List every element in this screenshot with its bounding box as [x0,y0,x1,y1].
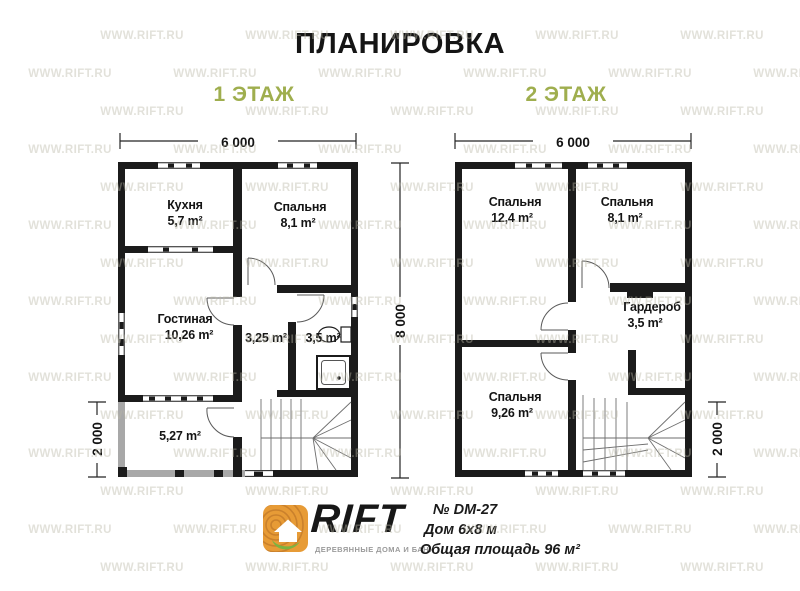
dimension-veranda-left: 2 000 [88,402,106,477]
floor2-plan: Спальня 12,4 m² Спальня 8,1 m² Гардероб … [455,162,692,477]
room-name: Спальня [489,195,542,209]
window [525,470,558,477]
dimension-depth: 8 000 [391,163,409,478]
room-area: 8,1 m² [608,211,643,225]
room-area: 3,5 m² [306,331,341,345]
window [515,162,562,169]
window [588,162,627,169]
project-number: № DM-27 [433,500,580,520]
entrance-opening [245,471,273,477]
room-name: Гардероб [623,300,681,314]
window [158,162,200,169]
room-name: Спальня [274,200,327,214]
door-arc [297,295,324,322]
dim-label: 2 000 [710,422,725,456]
dimension-width-floor2: 6 000 [455,133,691,150]
floor-plan-page: ПЛАНИРОВКА 1 ЭТАЖ 2 ЭТАЖ [0,0,800,591]
window [583,470,625,477]
room-area: 9,26 m² [491,406,533,420]
project-info: № DM-27 Дом 6х8 м Общая площадь 96 м² [420,500,580,560]
window [351,297,358,317]
room-area: 8,1 m² [281,216,316,230]
shower-icon [317,356,350,389]
room-name: Спальня [489,390,542,404]
room-area: 10,26 m² [165,328,213,342]
dim-label: 6 000 [221,135,255,150]
door-arc [248,258,275,285]
room-area: 3,5 m² [628,316,663,330]
window [118,313,125,355]
rift-logo-tagline: ДЕРЕВЯННЫЕ ДОМА И БАНИ [315,545,435,554]
room-name: Спальня [601,195,654,209]
floor1-doors [207,258,324,437]
dim-label: 6 000 [556,135,590,150]
floor2-room-labels: Спальня 12,4 m² Спальня 8,1 m² Гардероб … [489,195,682,420]
room-name: Кухня [167,198,203,212]
window [278,162,317,169]
room-name: Гостиная [158,312,213,326]
house-size: Дом 6х8 м [424,520,580,540]
room-area: 5,7 m² [168,214,203,228]
door-arc [582,261,609,288]
rift-logo-icon [263,505,308,552]
door-arc [541,353,568,380]
room-area: 5,27 m² [159,429,201,443]
dim-label: 8 000 [393,304,408,338]
window [143,395,213,402]
door-arc [207,408,234,437]
total-area: Общая площадь 96 м² [420,540,580,560]
door-arc [541,303,568,330]
floor1-plan: Кухня 5,7 m² Спальня 8,1 m² Гостиная 10,… [118,162,358,477]
staircase [261,399,351,470]
dim-label: 2 000 [90,422,105,456]
staircase [583,395,685,470]
dimension-width-floor1: 6 000 [120,133,356,150]
floor1-room-labels: Кухня 5,7 m² Спальня 8,1 m² Гостиная 10,… [158,198,341,443]
room-area: 3,25 m² [245,331,287,345]
window [148,246,213,253]
room-area: 12,4 m² [491,211,533,225]
rift-logo-text: RIFT [309,497,405,542]
dimension-veranda-right: 2 000 [708,402,726,477]
